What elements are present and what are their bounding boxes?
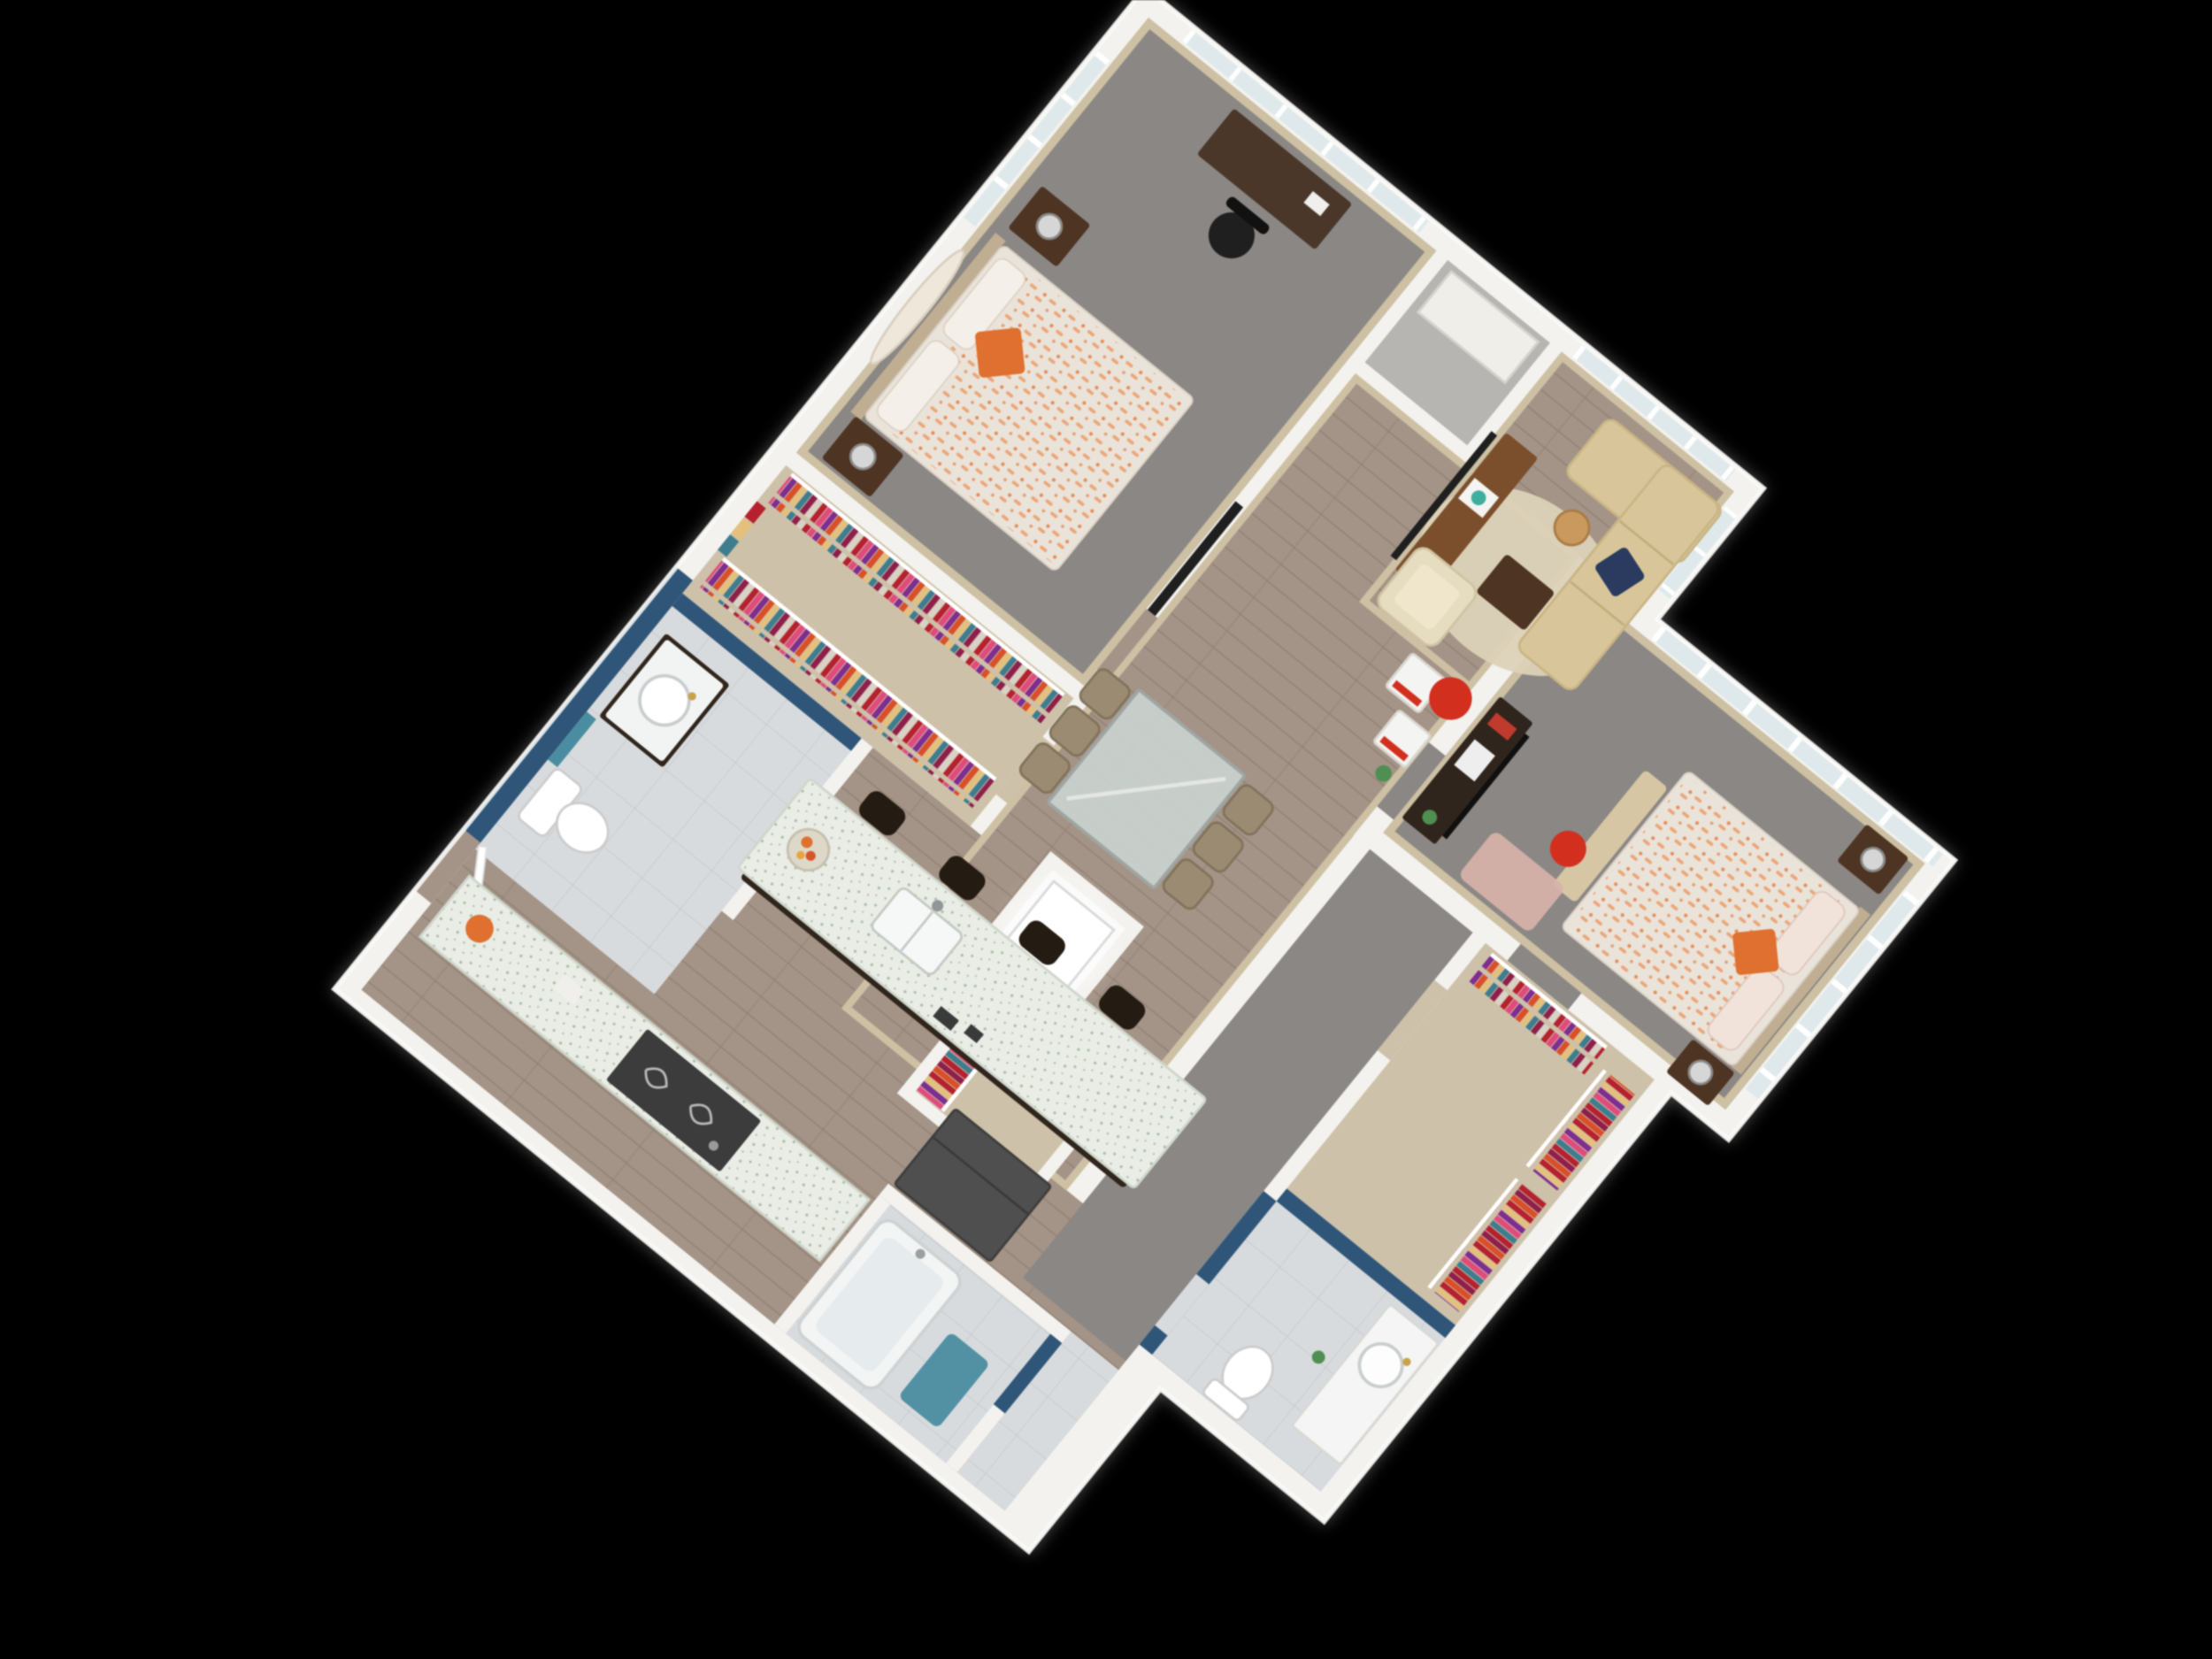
floor-plan-image — [0, 0, 2212, 1659]
floor-plan-svg — [0, 0, 2212, 1659]
bed1-orange-pillow — [975, 327, 1025, 378]
apartment-plan — [334, 0, 2062, 1659]
bed2-orange-pillow — [1732, 928, 1779, 975]
